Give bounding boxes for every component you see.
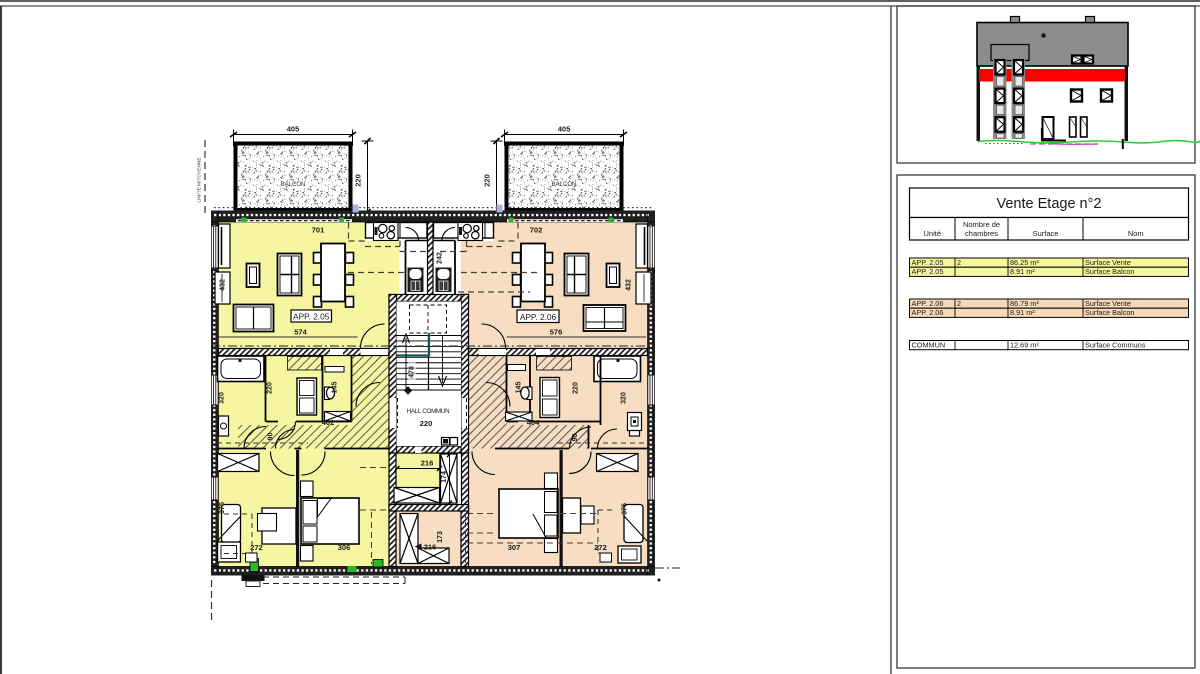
svg-text:145: 145 bbox=[516, 382, 523, 394]
svg-text:Nom: Nom bbox=[1128, 229, 1144, 238]
svg-text:2: 2 bbox=[957, 258, 961, 267]
svg-text:LIMITE MITOYENNE: LIMITE MITOYENNE bbox=[197, 157, 203, 202]
svg-text:576: 576 bbox=[550, 328, 563, 337]
svg-text:APP. 2.06: APP. 2.06 bbox=[912, 299, 944, 308]
svg-text:12.69 m²: 12.69 m² bbox=[1010, 340, 1039, 349]
svg-text:405: 405 bbox=[287, 125, 300, 134]
svg-text:220: 220 bbox=[573, 382, 580, 394]
svg-text:220: 220 bbox=[483, 174, 492, 187]
svg-text:220: 220 bbox=[354, 174, 363, 187]
svg-text:216: 216 bbox=[424, 543, 437, 552]
svg-text:APP. 2.05: APP. 2.05 bbox=[293, 312, 330, 322]
svg-text:Surface Communs: Surface Communs bbox=[1085, 340, 1146, 349]
svg-text:702: 702 bbox=[530, 226, 543, 235]
svg-text:220: 220 bbox=[420, 419, 433, 428]
svg-text:320: 320 bbox=[219, 392, 226, 404]
svg-text:272: 272 bbox=[250, 543, 263, 552]
svg-text:COMMUN: COMMUN bbox=[912, 340, 946, 349]
svg-text:APP. 2.06: APP. 2.06 bbox=[912, 308, 944, 317]
svg-text:BALCON: BALCON bbox=[552, 182, 577, 188]
svg-text:Nombre de: Nombre de bbox=[963, 220, 1000, 229]
svg-text:307: 307 bbox=[508, 543, 521, 552]
svg-text:432: 432 bbox=[220, 279, 227, 291]
svg-text:90: 90 bbox=[268, 433, 275, 441]
svg-text:86.79 m²: 86.79 m² bbox=[1010, 299, 1039, 308]
svg-text:220: 220 bbox=[267, 382, 274, 394]
svg-text:Surface Vente: Surface Vente bbox=[1085, 258, 1131, 267]
svg-text:86.25 m²: 86.25 m² bbox=[1010, 258, 1039, 267]
svg-text:chambres: chambres bbox=[965, 229, 998, 238]
svg-text:APP. 2.05: APP. 2.05 bbox=[912, 258, 944, 267]
svg-text:701: 701 bbox=[312, 226, 325, 235]
svg-text:375: 375 bbox=[219, 502, 226, 514]
svg-text:145: 145 bbox=[332, 382, 339, 394]
svg-text:8.91 m²: 8.91 m² bbox=[1010, 308, 1035, 317]
svg-text:Unité: Unité bbox=[923, 229, 941, 238]
svg-text:HALL COMMUN: HALL COMMUN bbox=[407, 408, 450, 415]
svg-text:BALCON: BALCON bbox=[281, 182, 306, 188]
svg-text:405: 405 bbox=[558, 125, 571, 134]
svg-text:216: 216 bbox=[421, 459, 434, 468]
svg-text:404: 404 bbox=[527, 418, 540, 427]
svg-text:320: 320 bbox=[621, 392, 628, 404]
svg-text:574: 574 bbox=[294, 328, 307, 337]
svg-text:2: 2 bbox=[957, 299, 961, 308]
svg-text:306: 306 bbox=[338, 543, 351, 552]
svg-text:APP. 2.06: APP. 2.06 bbox=[520, 312, 557, 322]
svg-text:8.91 m²: 8.91 m² bbox=[1010, 267, 1035, 276]
svg-text:Surface: Surface bbox=[1033, 229, 1059, 238]
svg-text:Surface Vente: Surface Vente bbox=[1085, 299, 1131, 308]
svg-text:Surface Balcon: Surface Balcon bbox=[1085, 267, 1135, 276]
svg-text:432: 432 bbox=[626, 279, 633, 291]
svg-text:478: 478 bbox=[409, 366, 416, 378]
svg-text:375: 375 bbox=[622, 503, 629, 515]
svg-text:174: 174 bbox=[441, 471, 448, 483]
svg-text:272: 272 bbox=[594, 543, 607, 552]
svg-text:402: 402 bbox=[322, 418, 335, 427]
svg-text:Surface Balcon: Surface Balcon bbox=[1085, 308, 1135, 317]
svg-text:Vente Etage n°2: Vente Etage n°2 bbox=[997, 196, 1102, 212]
svg-text:APP. 2.05: APP. 2.05 bbox=[912, 267, 944, 276]
svg-text:173: 173 bbox=[437, 531, 444, 543]
svg-text:242: 242 bbox=[437, 252, 444, 264]
